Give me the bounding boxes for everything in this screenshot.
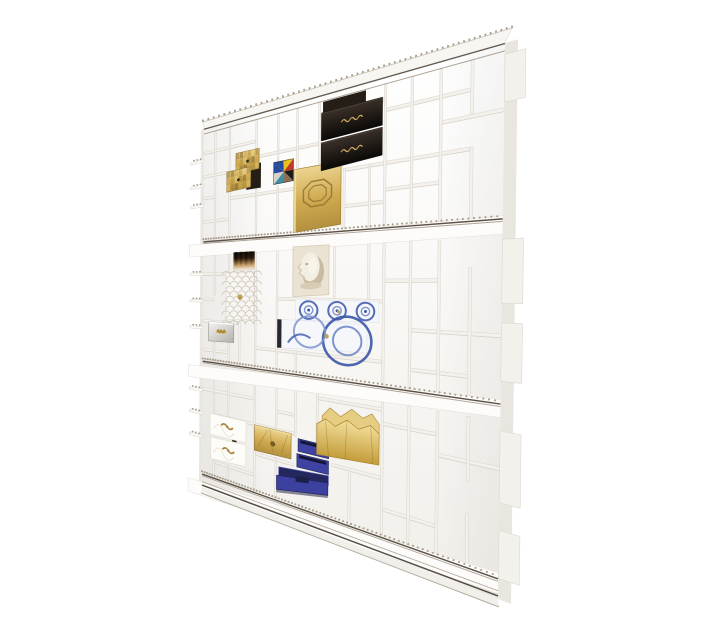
right-box-side: [498, 530, 520, 585]
stud: [306, 372, 308, 374]
stud: [367, 529, 369, 531]
stud: [446, 219, 448, 221]
stud: [384, 535, 386, 537]
stud: [235, 482, 237, 484]
divider-board: [469, 147, 473, 221]
divider-board: [318, 102, 321, 164]
stud: [396, 223, 398, 225]
stud: [425, 221, 427, 223]
stud: [269, 367, 271, 369]
gold-emblem-door: [294, 161, 341, 232]
divider-board: [228, 252, 230, 272]
stud: [407, 543, 409, 545]
stud: [430, 220, 432, 222]
stud: [479, 217, 481, 219]
stud: [209, 358, 211, 360]
stud: [332, 376, 334, 378]
stud: [381, 383, 383, 385]
stud: [266, 367, 268, 369]
stud: [361, 226, 363, 228]
divider-board: [214, 131, 216, 241]
stud: [415, 222, 417, 224]
stud: [202, 357, 204, 359]
stud: [399, 386, 401, 388]
mirror-drawer: [209, 322, 234, 343]
stud: [220, 237, 222, 239]
stud: [242, 363, 244, 365]
stud: [276, 232, 278, 234]
stud: [423, 389, 425, 391]
stud: [488, 398, 490, 400]
stud: [285, 369, 287, 371]
divider-board: [255, 189, 257, 237]
stud: [490, 216, 492, 218]
stud: [389, 537, 391, 539]
divider-board: [471, 59, 475, 114]
divider-board: [256, 119, 258, 148]
stud: [482, 398, 484, 400]
stud: [281, 498, 283, 500]
stud: [237, 235, 239, 237]
stud: [390, 384, 392, 386]
stud: [226, 236, 228, 238]
stud: [283, 232, 285, 234]
stud: [422, 548, 424, 550]
divider-board: [294, 388, 296, 437]
stud: [214, 359, 216, 361]
stud: [364, 381, 366, 383]
stud: [371, 530, 373, 532]
stud: [432, 552, 434, 554]
stud: [260, 366, 262, 368]
stud: [435, 220, 437, 222]
stud: [452, 559, 454, 561]
stud: [329, 228, 331, 230]
stud: [467, 217, 469, 219]
stud: [279, 368, 281, 370]
stud: [308, 508, 310, 510]
product-photo-stage: [0, 0, 720, 630]
stud: [378, 224, 380, 226]
stud: [223, 236, 225, 238]
stud: [362, 527, 364, 529]
stud: [257, 365, 259, 367]
stud: [428, 390, 430, 392]
stud: [317, 374, 319, 376]
stud: [339, 377, 341, 379]
stud: [454, 394, 456, 396]
stud: [486, 571, 488, 573]
stud: [229, 236, 231, 238]
stud: [289, 370, 291, 372]
divider-board: [213, 374, 215, 413]
stud: [353, 226, 355, 228]
stud: [233, 481, 235, 483]
stud: [234, 236, 236, 238]
stud: [338, 519, 340, 521]
stud: [473, 217, 475, 219]
stud: [247, 486, 249, 488]
stud: [209, 473, 211, 475]
stud: [392, 223, 394, 225]
stud: [282, 369, 284, 371]
stud: [462, 218, 464, 220]
stud: [286, 232, 288, 234]
stud: [410, 222, 412, 224]
stud: [324, 375, 326, 377]
stud: [342, 520, 344, 522]
stud: [249, 234, 251, 236]
divider-board: [296, 108, 298, 168]
divider-board: [277, 186, 279, 236]
stud: [315, 511, 317, 513]
stud: [322, 229, 324, 231]
divider-board: [214, 253, 216, 296]
stud: [207, 358, 209, 360]
stud: [374, 225, 376, 227]
stud: [346, 521, 348, 523]
stud: [268, 494, 270, 496]
stud: [334, 517, 336, 519]
divider-board: [465, 513, 469, 568]
divider-board: [333, 246, 336, 299]
stud: [449, 393, 451, 395]
stud: [484, 216, 486, 218]
stud: [360, 380, 362, 382]
divider-board: [275, 384, 277, 429]
stud: [278, 497, 280, 499]
stud: [328, 375, 330, 377]
stud: [318, 229, 320, 231]
stud: [231, 236, 233, 238]
stud: [214, 475, 216, 477]
stud: [330, 516, 332, 518]
stud: [444, 392, 446, 394]
stud: [204, 471, 206, 473]
stud: [433, 391, 435, 393]
stud: [207, 238, 209, 240]
striped-art-panel: [233, 251, 255, 271]
stud: [294, 503, 296, 505]
stud: [238, 483, 240, 485]
stud: [219, 477, 221, 479]
stud: [292, 370, 294, 372]
stud: [442, 555, 444, 557]
stud: [258, 234, 260, 236]
stud: [246, 235, 248, 237]
shelf-scene: [0, 0, 720, 630]
stud: [251, 234, 253, 236]
stud: [494, 399, 496, 401]
stud: [253, 489, 255, 491]
stud: [291, 502, 293, 504]
left-protruding-shelf: [190, 299, 203, 302]
stud: [320, 374, 322, 376]
stud: [265, 493, 267, 495]
divider-board: [239, 322, 241, 366]
stud: [244, 485, 246, 487]
stud: [236, 362, 238, 364]
right-box-side: [502, 238, 524, 304]
stud: [314, 229, 316, 231]
stud: [341, 227, 343, 229]
stud: [239, 363, 241, 365]
stud: [215, 237, 217, 239]
stud: [299, 371, 301, 373]
stud: [463, 563, 465, 565]
stud: [409, 387, 411, 389]
stud: [412, 545, 414, 547]
stud: [311, 230, 313, 232]
stud: [372, 382, 374, 384]
stud: [358, 526, 360, 528]
stud: [417, 546, 419, 548]
stud: [227, 479, 229, 481]
stud: [460, 394, 462, 396]
stud: [262, 492, 264, 494]
stud: [347, 378, 349, 380]
divider-board: [295, 351, 297, 374]
right-box-side: [499, 431, 521, 508]
stud: [267, 233, 269, 235]
stud: [398, 540, 400, 542]
stud: [273, 233, 275, 235]
stud: [301, 506, 303, 508]
stud: [335, 377, 337, 379]
stud: [354, 524, 356, 526]
stud: [280, 232, 282, 234]
stud: [368, 381, 370, 383]
stud: [225, 361, 227, 363]
stud: [440, 220, 442, 222]
stud: [288, 501, 290, 503]
stud: [312, 509, 314, 511]
stud: [240, 235, 242, 237]
stud: [349, 227, 351, 229]
stud: [456, 218, 458, 220]
stud: [447, 557, 449, 559]
stud: [263, 366, 265, 368]
stud: [217, 360, 219, 362]
stud: [309, 373, 311, 375]
stud: [414, 388, 416, 390]
stud: [220, 360, 222, 362]
stud: [250, 487, 252, 489]
stud: [404, 386, 406, 388]
stud: [375, 532, 377, 534]
stud: [204, 358, 206, 360]
stud: [469, 565, 471, 567]
stud: [228, 361, 230, 363]
stud: [496, 215, 498, 217]
right-box-side: [501, 323, 523, 384]
stud: [476, 397, 478, 399]
stud: [420, 221, 422, 223]
stud: [251, 364, 253, 366]
stud: [216, 476, 218, 478]
stud: [212, 359, 214, 361]
stud: [241, 484, 243, 486]
stud: [259, 491, 261, 493]
stud: [261, 234, 263, 236]
stud: [305, 507, 307, 509]
stud: [231, 361, 233, 363]
divider-board: [343, 168, 346, 230]
stud: [233, 362, 235, 364]
stud: [383, 224, 385, 226]
stud: [355, 379, 357, 381]
stud: [295, 371, 297, 373]
stud: [437, 554, 439, 556]
right-box-side: [504, 49, 526, 103]
stud: [298, 504, 300, 506]
stud: [458, 561, 460, 563]
divider-board: [277, 113, 279, 161]
stud: [327, 515, 329, 517]
stud: [406, 222, 408, 224]
stud: [323, 513, 325, 515]
divider-board: [466, 416, 470, 481]
stud: [222, 478, 224, 480]
divider-board: [228, 377, 230, 417]
stud: [248, 364, 250, 366]
stud: [211, 474, 213, 476]
stud: [213, 237, 215, 239]
stud: [245, 364, 247, 366]
stud: [274, 496, 276, 498]
stud: [427, 550, 429, 552]
stud: [275, 368, 277, 370]
stud: [271, 495, 273, 497]
stud: [387, 224, 389, 226]
stud: [230, 480, 232, 482]
stud: [254, 234, 256, 236]
stud: [222, 360, 224, 362]
stud: [302, 372, 304, 374]
divider-board: [368, 164, 371, 229]
stud: [256, 490, 258, 492]
stud: [224, 478, 226, 480]
stud: [474, 567, 476, 569]
left-protruding-shelf: [190, 273, 203, 276]
stud: [201, 470, 203, 472]
stud: [351, 379, 353, 381]
stud: [451, 219, 453, 221]
stud: [205, 238, 207, 240]
stud: [395, 385, 397, 387]
stud: [465, 395, 467, 397]
stud: [365, 225, 367, 227]
stud: [319, 512, 321, 514]
stud: [202, 238, 204, 240]
stud: [380, 533, 382, 535]
stud: [210, 237, 212, 239]
stud: [218, 237, 220, 239]
stud: [492, 573, 494, 575]
stud: [206, 472, 208, 474]
stud: [264, 233, 266, 235]
stud: [345, 227, 347, 229]
stud: [343, 378, 345, 380]
stud: [471, 396, 473, 398]
cherub-relief-panel: [293, 245, 329, 297]
stud: [386, 384, 388, 386]
stud: [270, 233, 272, 235]
stud: [290, 231, 292, 233]
stud: [439, 391, 441, 393]
stud: [325, 229, 327, 231]
divider-board: [367, 244, 370, 299]
stud: [350, 523, 352, 525]
stud: [284, 500, 286, 502]
stud: [402, 541, 404, 543]
stud: [480, 569, 482, 571]
stud: [313, 373, 315, 375]
stud: [272, 367, 274, 369]
stud: [401, 223, 403, 225]
stud: [377, 382, 379, 384]
stud: [243, 235, 245, 237]
stud: [357, 226, 359, 228]
divider-board: [348, 470, 351, 526]
triangle-artwork: [274, 159, 293, 184]
stud: [337, 228, 339, 230]
stud: [418, 388, 420, 390]
stud: [254, 365, 256, 367]
stud: [370, 225, 372, 227]
stud: [333, 228, 335, 230]
stud: [393, 538, 395, 540]
